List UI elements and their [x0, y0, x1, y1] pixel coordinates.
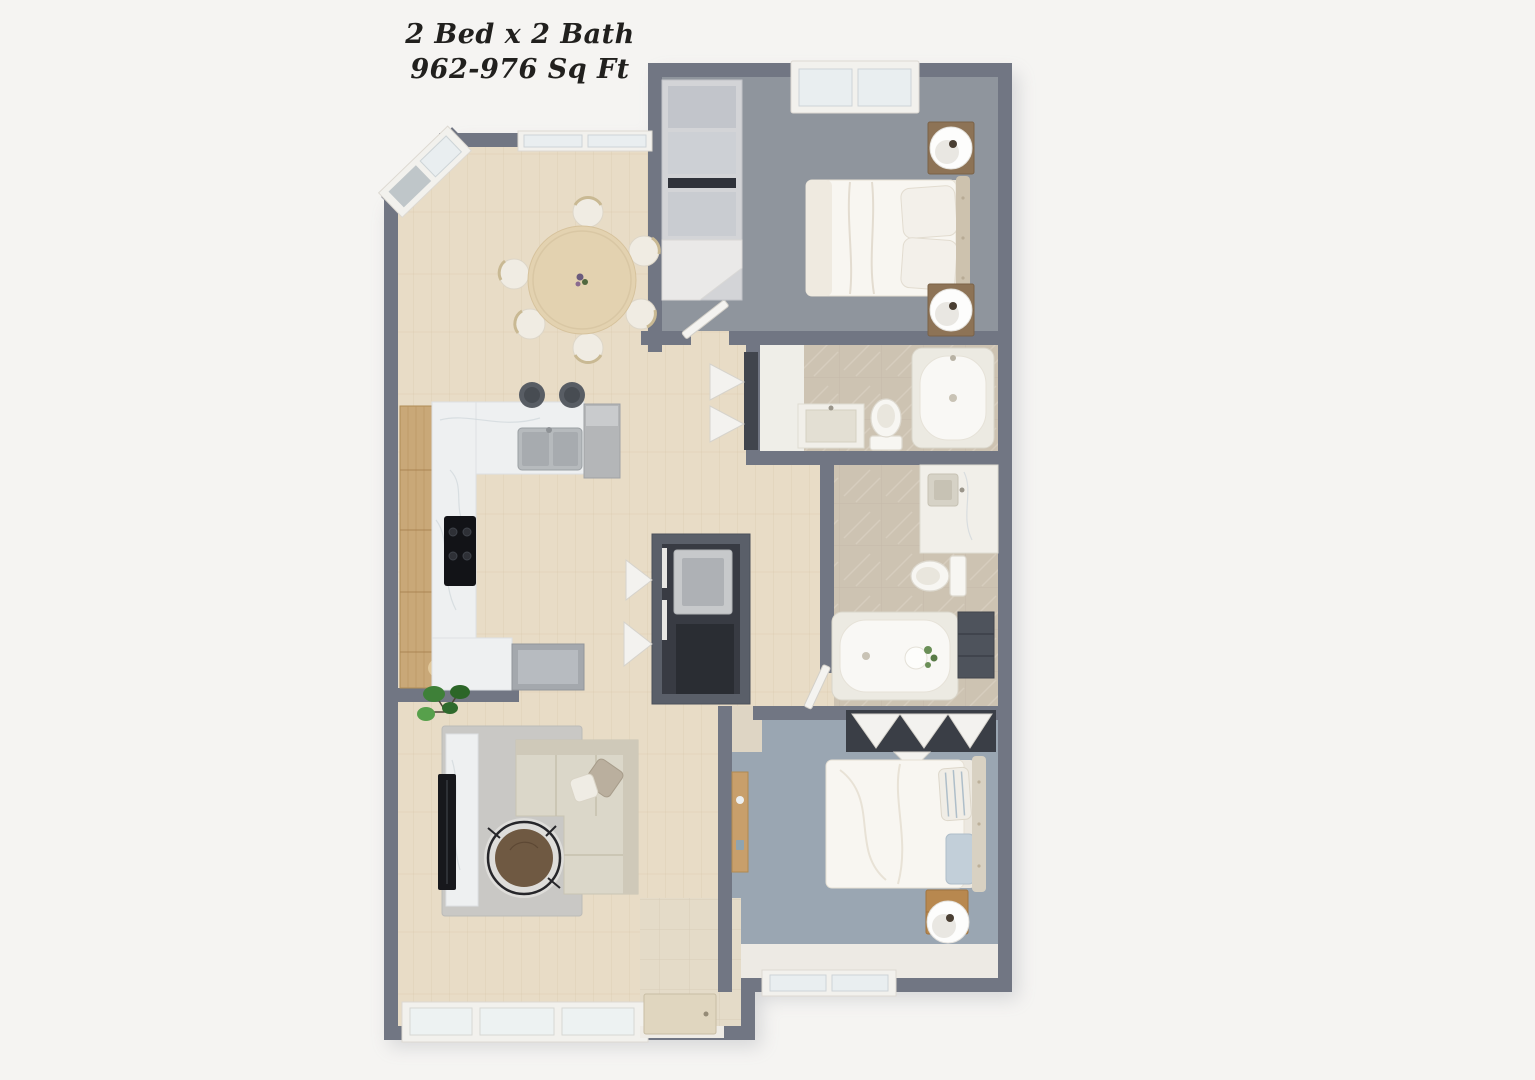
bedroom-2-window [762, 970, 896, 996]
sink-faucet [546, 427, 552, 433]
bathtub [912, 348, 994, 448]
table-lamp [930, 289, 972, 331]
bathroom-2-vanity [920, 465, 998, 553]
bedroom-1-window [791, 61, 919, 113]
floorplan-page: 2 Bed x 2 Bath 962-976 Sq Ft [0, 0, 1535, 1080]
cooktop [444, 516, 476, 586]
entry-door [640, 994, 724, 1038]
living-room-windows [402, 1002, 648, 1042]
tub-drain [949, 394, 957, 402]
coffee-table [484, 818, 564, 898]
bed-1 [806, 176, 970, 300]
vanity-faucet [829, 406, 834, 411]
bed-1-pillow [900, 237, 957, 291]
bed-2-throw [946, 834, 974, 884]
bed-1-pillow [900, 185, 957, 239]
tub-drain [862, 652, 870, 660]
dining-window [518, 131, 652, 151]
vanity-faucet [960, 488, 965, 493]
bed-2 [826, 756, 986, 892]
kitchen-sink [518, 427, 582, 470]
toilet [870, 399, 902, 450]
bathtub [832, 612, 958, 700]
dining-chair [573, 197, 603, 227]
dining-chair [629, 236, 659, 266]
dining-chair [499, 259, 529, 289]
bedroom-1-closet [662, 80, 742, 300]
entry-door-handle [704, 1012, 709, 1017]
dining-table [528, 226, 636, 334]
floorplan-drawing [0, 0, 1535, 1080]
desk [732, 772, 748, 872]
dishwasher [512, 644, 584, 690]
tub-faucet [950, 355, 956, 361]
table-lamp [927, 901, 969, 943]
bathroom-1-vanity [798, 404, 864, 448]
table-lamp [930, 127, 972, 169]
washer [674, 550, 732, 614]
dining-chair [573, 333, 603, 363]
counter-bottom-run [432, 638, 512, 690]
table-centerpiece [577, 274, 584, 281]
bathroom-1-shower-pan [760, 345, 804, 451]
bathroom-2-cabinet [958, 612, 994, 678]
